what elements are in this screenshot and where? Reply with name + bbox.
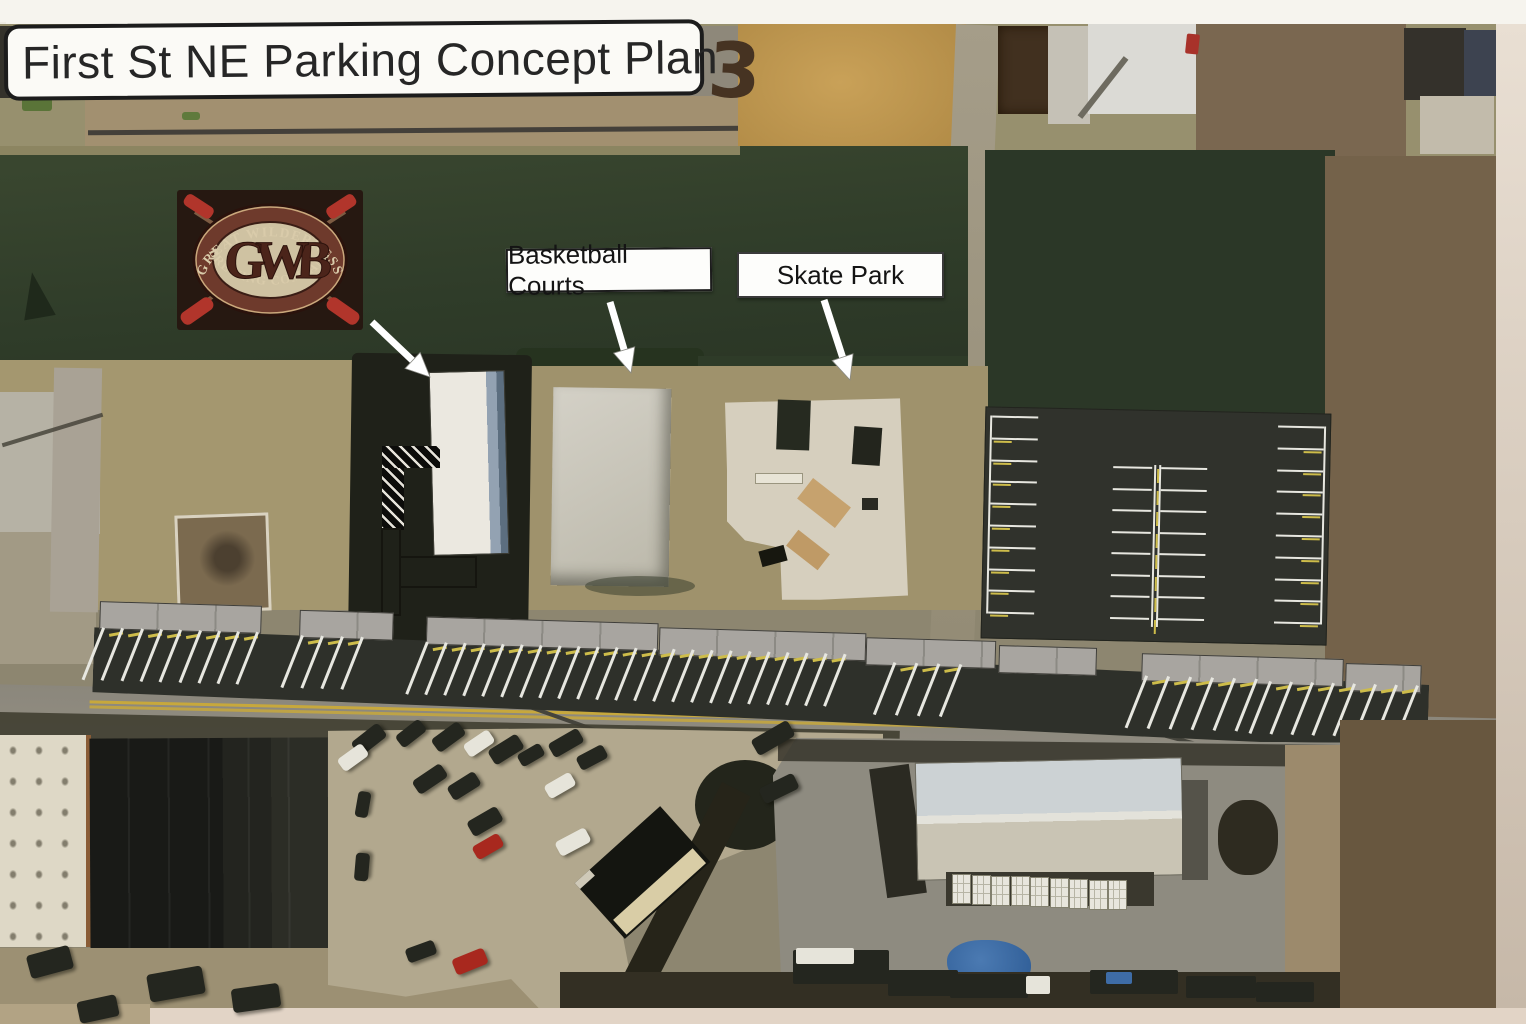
white-building-bottom-left [0, 735, 90, 947]
skate-ramp-dark [852, 426, 883, 466]
warehouse-right-shadow [1182, 780, 1208, 880]
dark-roof-top-right [1404, 28, 1466, 100]
pallet-crate [1011, 876, 1030, 906]
lot-stall-line-center-left [1113, 488, 1152, 491]
blue-roof-top-right [1464, 30, 1496, 96]
page-number-handwritten: 3 [706, 25, 763, 117]
lot-stall-line-center-right [1158, 596, 1204, 599]
sidewalk-segment [299, 610, 394, 641]
pallet-crate [1108, 880, 1127, 910]
court-shadow [585, 576, 695, 596]
lot-end-line [986, 416, 992, 614]
truck-trailer [1256, 982, 1314, 1002]
lot-stall-line-right [1276, 513, 1322, 516]
paper-bottom-left-corner [0, 1004, 150, 1024]
lot-yellow-mark [1300, 625, 1318, 627]
basketball-courts-label: Basketball Courts [506, 247, 712, 293]
lot-center-yellow [1155, 533, 1157, 547]
paper-right-edge [1496, 24, 1526, 1014]
lot-end-line [1320, 426, 1326, 624]
plan-title-text: First St NE Parking Concept Plan [22, 30, 718, 89]
truck-trailer [1106, 972, 1132, 984]
lot-yellow-mark [1303, 494, 1321, 496]
lot-stall-line-right [1275, 556, 1321, 559]
trees-top-right [1196, 24, 1406, 164]
lot-yellow-mark [1303, 473, 1321, 475]
pallet-crate [952, 874, 971, 904]
pallet-crate [1050, 878, 1069, 908]
paper-bottom-edge [0, 1008, 1526, 1024]
lot-stall-line-right [1277, 491, 1323, 494]
sidewalk-segment [998, 645, 1097, 676]
lot-stall-line-right [1274, 600, 1320, 603]
dirt-patch-outlined [174, 512, 271, 613]
lot-yellow-mark [990, 615, 1008, 617]
lot-yellow-mark [991, 549, 1009, 551]
lot-center-yellow [1155, 555, 1157, 569]
truck-trailer [1026, 976, 1050, 994]
lot-yellow-mark [1301, 560, 1319, 562]
parked-car [354, 852, 370, 881]
basketball-court [551, 387, 672, 587]
lot-stall-line-right [1278, 447, 1324, 450]
lot-center-yellow [1154, 598, 1156, 612]
lot-center-yellow [1154, 576, 1156, 590]
lot-stall-line-left [992, 416, 1038, 419]
lot-center-yellow [1156, 512, 1158, 526]
lot-yellow-mark [993, 484, 1011, 486]
pallet-crate [1089, 880, 1108, 910]
black-building-bottom-left [89, 737, 332, 952]
new-parking-lot [981, 406, 1332, 645]
light-patch-right [1420, 96, 1494, 154]
trees-right-mid [985, 150, 1335, 418]
lot-yellow-mark [992, 506, 1010, 508]
lot-stall-line-center-left [1112, 531, 1151, 534]
outline-rect-vertical [381, 528, 401, 616]
lot-stall-line-center-right [1161, 489, 1207, 492]
lot-stall-line-right [1278, 426, 1324, 429]
lot-stall-line-center-left [1112, 509, 1151, 512]
lot-yellow-mark [994, 440, 1012, 442]
lot-stall-line-center-right [1160, 532, 1206, 535]
skate-gap-dark [776, 399, 811, 450]
pallet-crate [1069, 879, 1088, 909]
lot-center-yellow [1156, 490, 1158, 504]
lot-stall-line-center-left [1110, 617, 1149, 620]
skate-block-dark [862, 498, 878, 510]
truck-trailer [1090, 970, 1178, 994]
driveway-left [50, 368, 102, 613]
lot-stall-line-right [1277, 469, 1323, 472]
lot-yellow-mark [1301, 582, 1319, 584]
lot-yellow-mark [991, 571, 1009, 573]
hatched-area-column [382, 468, 404, 530]
lot-stall-line-right [1276, 535, 1322, 538]
lot-yellow-mark [991, 593, 1009, 595]
truck-trailer [796, 948, 854, 964]
skate-park-label-text: Skate Park [777, 260, 904, 291]
lot-stall-line-center-left [1111, 595, 1150, 598]
lot-stall-line-center-left [1111, 574, 1150, 577]
skate-park-label: Skate Park [737, 252, 944, 298]
field-top-fringe [0, 146, 740, 155]
grass-patch-small-2 [182, 112, 200, 120]
truck-trailer [950, 974, 1028, 998]
lot-stall-line-center-left [1113, 466, 1152, 469]
white-roof-building-top [1088, 24, 1198, 114]
red-car-top [1185, 33, 1200, 54]
lot-stall-line-right [1275, 578, 1321, 581]
lot-stall-line-right [1274, 622, 1320, 625]
pallet-crate [972, 875, 991, 905]
sidewalk-segment [1141, 653, 1344, 687]
lot-yellow-mark [1300, 603, 1318, 605]
lot-yellow-mark [1304, 451, 1322, 453]
outline-rect-horizontal [399, 556, 477, 588]
plan-title-box: First St NE Parking Concept Plan [4, 19, 705, 100]
lot-stall-line-center-right [1158, 618, 1204, 621]
warehouse-building [915, 757, 1184, 881]
lot-stall-line-center-right [1159, 553, 1205, 556]
tree-blob-right-of-warehouse [1218, 800, 1278, 875]
lot-yellow-mark [992, 528, 1010, 530]
lot-center-yellow [1156, 469, 1158, 483]
truck-trailer [888, 970, 958, 996]
brewery-building [429, 370, 510, 556]
lot-stall-line-center-right [1160, 510, 1206, 513]
hatched-area-bar [382, 446, 440, 468]
sidewalk-segment [865, 637, 996, 669]
skate-rail-white [755, 473, 803, 484]
lot-yellow-mark [1302, 516, 1320, 518]
lot-stall-line-center-right [1159, 575, 1205, 578]
lot-stall-line-center-right [1161, 467, 1207, 470]
truck-trailer [1186, 976, 1256, 998]
lot-yellow-mark [1302, 538, 1320, 540]
lot-yellow-mark [993, 462, 1011, 464]
pallet-crate [1030, 877, 1049, 907]
basketball-courts-label-text: Basketball Courts [508, 238, 711, 302]
concept-plan-page: GREAT WILDERNESS BREWING COMPANY GWB Bas… [0, 0, 1526, 1024]
pallet-crate [991, 876, 1010, 906]
lot-stall-line-center-left [1111, 552, 1150, 555]
